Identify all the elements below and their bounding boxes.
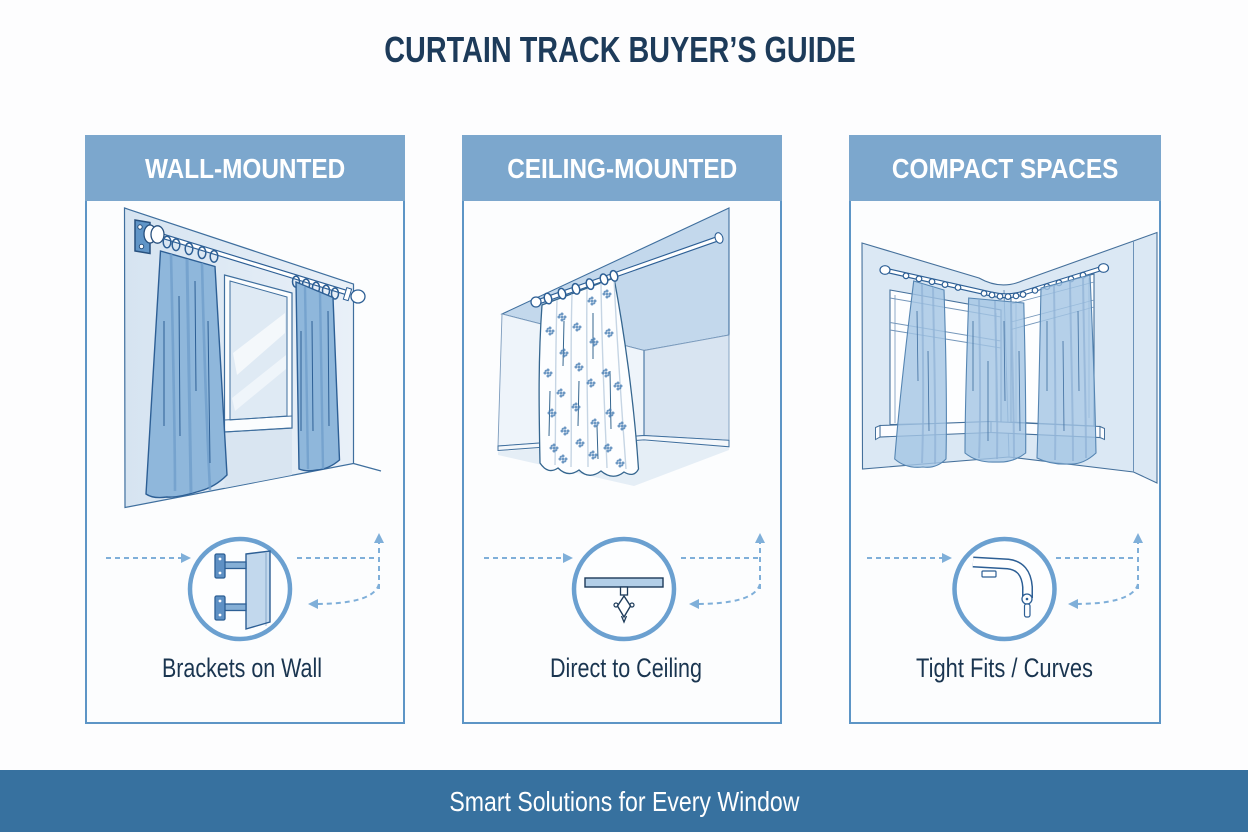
svg-text:Tight Fits / Curves: Tight Fits / Curves [916, 653, 1093, 683]
svg-text:Brackets on Wall: Brackets on Wall [162, 653, 322, 683]
svg-text:Direct to Ceiling: Direct to Ceiling [550, 653, 702, 683]
